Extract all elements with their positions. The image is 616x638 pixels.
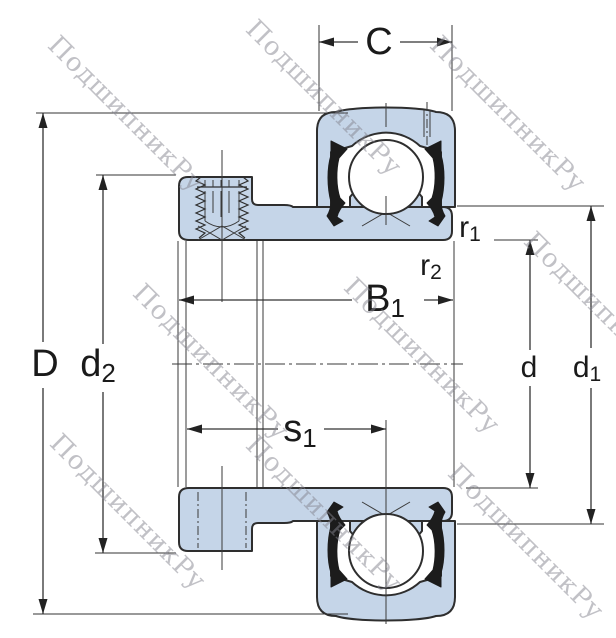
watermark: ПодшипникРу: [127, 278, 295, 446]
watermark: ПодшипникРу: [442, 458, 610, 626]
watermark: ПодшипникРу: [338, 272, 506, 440]
dimension-d-label: d: [521, 351, 538, 384]
dimension-C-label: C: [365, 21, 392, 63]
dimension-r1-label: r1: [459, 211, 481, 246]
dimension-d: d: [466, 240, 538, 488]
dimension-B1: B1: [179, 278, 453, 323]
dimension-D-label: D: [31, 343, 58, 385]
bearing-top-half: [179, 108, 455, 241]
bearing-diagram: C D d2 B1 s1 r1 r2 d: [0, 0, 616, 638]
dimension-d1-label: d1: [573, 351, 601, 386]
dimension-r2-label: r2: [420, 249, 442, 284]
bearing-diagram-page: C D d2 B1 s1 r1 r2 d: [0, 0, 616, 638]
dimension-d2-label: d2: [80, 343, 116, 388]
watermark: ПодшипникРу: [42, 30, 210, 198]
